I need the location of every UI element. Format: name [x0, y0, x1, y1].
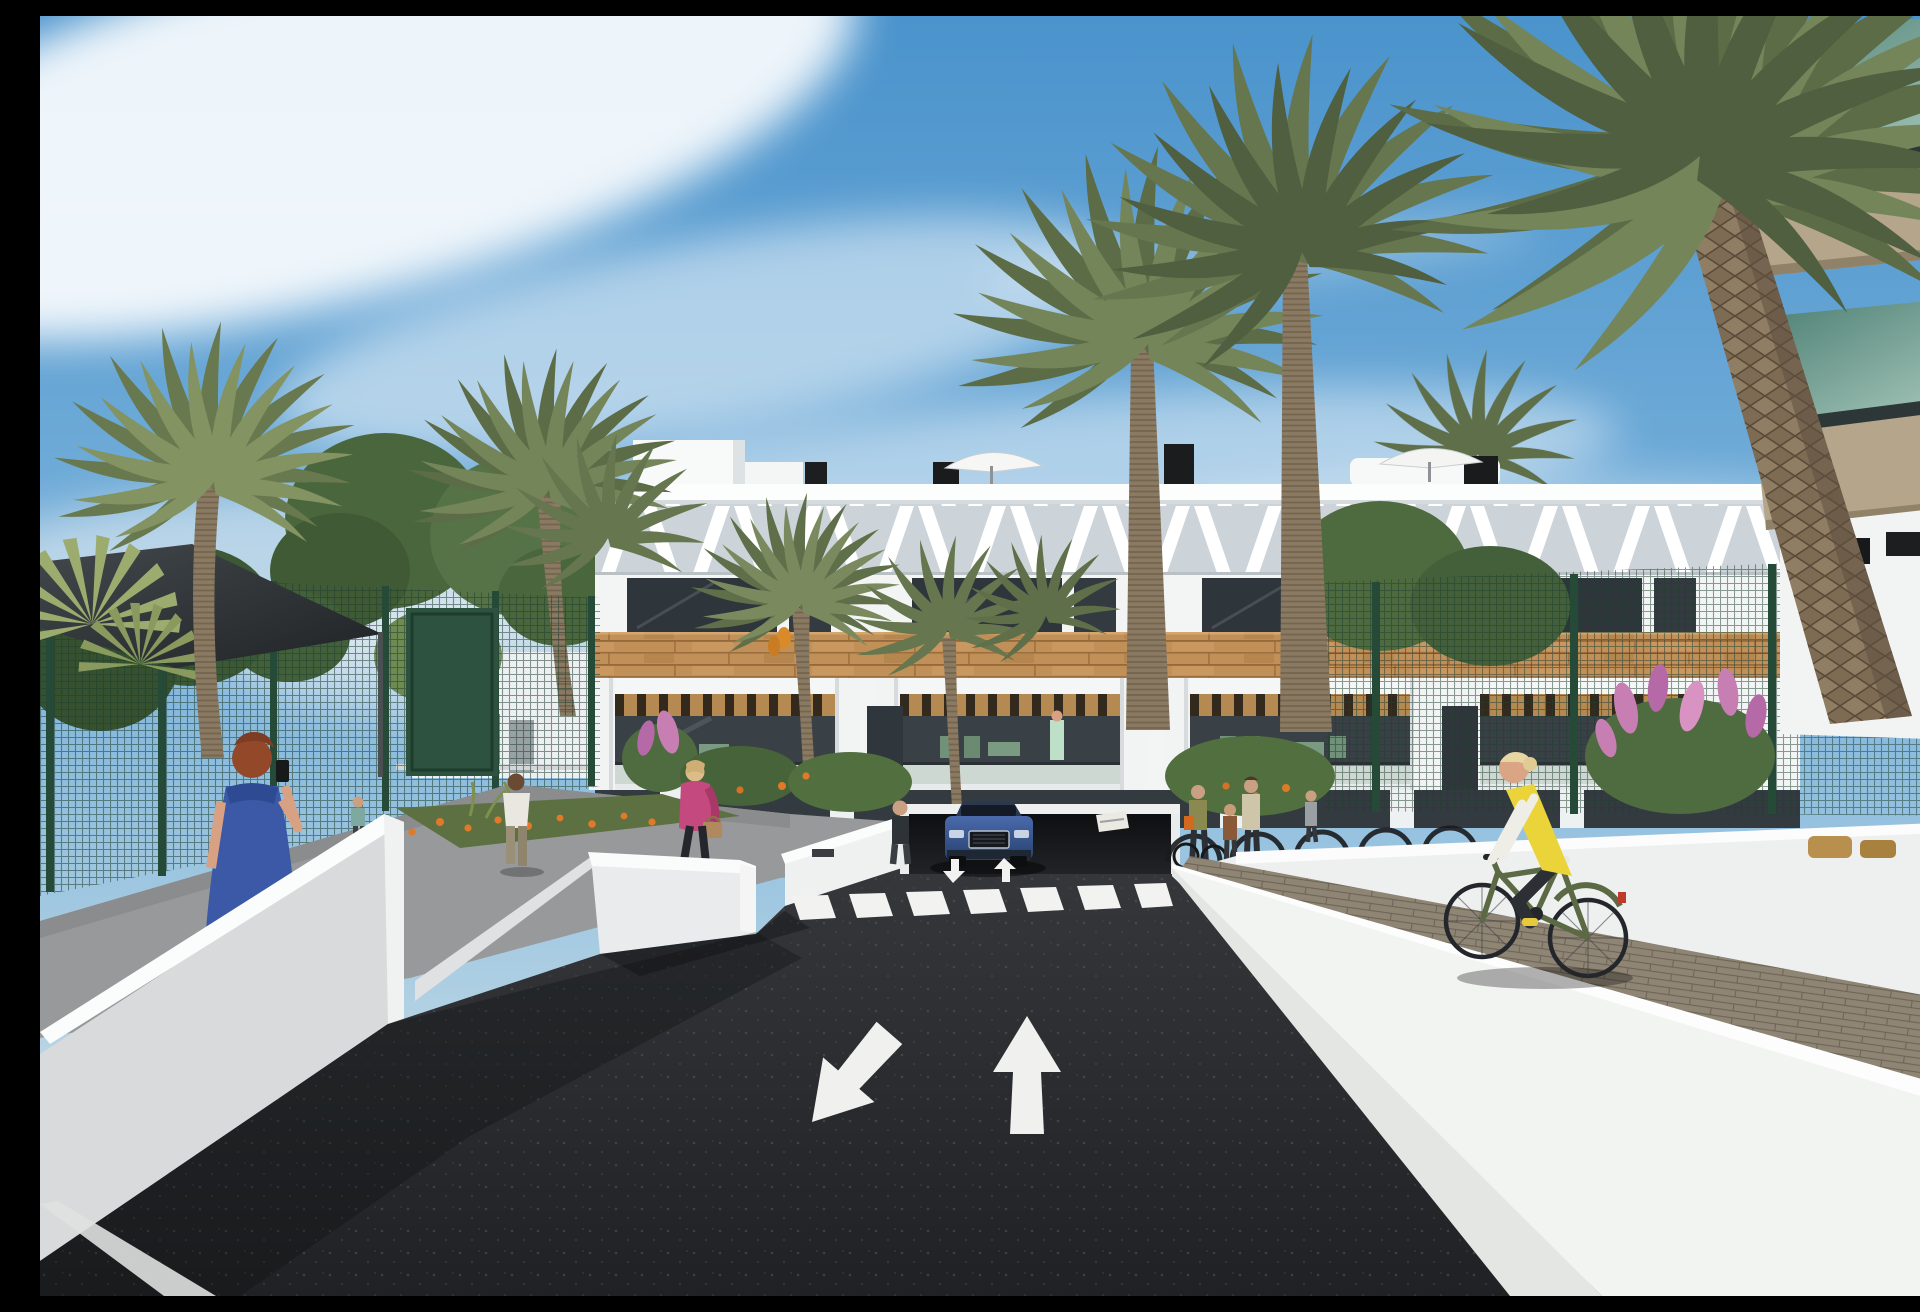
architectural-render	[40, 16, 1920, 1296]
garden-gate	[406, 608, 498, 776]
